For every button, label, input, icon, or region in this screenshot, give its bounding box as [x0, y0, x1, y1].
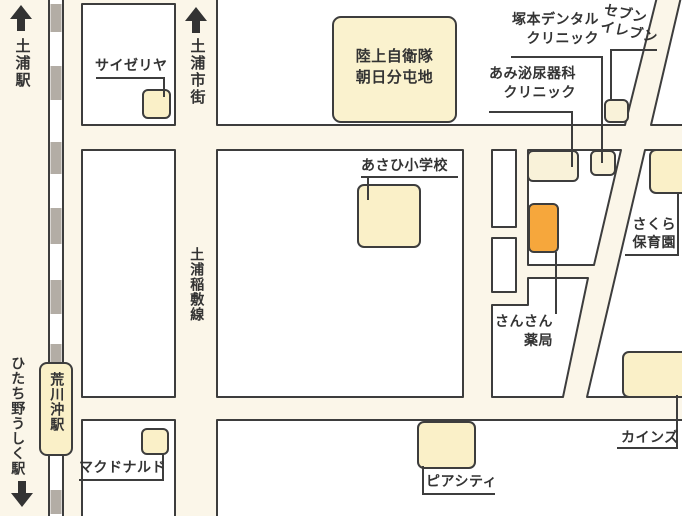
cainz-label: カインズ	[621, 428, 679, 446]
tsukamoto-dental-label: 塚本デンタル クリニック	[512, 10, 599, 48]
saizeriya-label: サイゼリヤ	[95, 56, 168, 74]
ami-urology-building	[528, 151, 578, 181]
tsuchiura-station-label: 土浦駅	[12, 38, 32, 89]
block-school	[217, 150, 463, 397]
piacity-building	[418, 422, 475, 468]
sakura-nursery-building	[650, 150, 682, 193]
ami-urology-label-line1: あみ泌尿器科	[489, 64, 576, 83]
jsdf-camp-label-line2: 朝日分屯地	[333, 67, 456, 88]
area-map: 土浦駅 土浦市街 土浦稲敷線 ひたち野うしく駅 荒川沖駅 サイゼリヤ 陸上自衛隊…	[0, 0, 682, 516]
sakura-nursery-label: さくら 保育園	[633, 215, 677, 251]
hitachino-ushiku-station-label: ひたち野うしく駅	[9, 356, 27, 476]
mcdonalds-label: マクドナルド	[79, 458, 166, 476]
sansan-pharmacy-label: さんさん 薬局	[495, 312, 553, 350]
piacity-label: ピアシティ	[426, 472, 497, 490]
sansan-pharmacy-label-line2: 薬局	[495, 331, 553, 350]
south-arrow-hitachino-icon	[11, 481, 33, 507]
sakura-nursery-label-line2: 保育園	[633, 233, 677, 251]
block-west-middle	[82, 150, 175, 397]
unnamed-building-1	[492, 150, 516, 227]
cainz-building	[623, 352, 682, 397]
unnamed-building-2	[492, 238, 516, 292]
tsuchiura-inashiki-road-label: 土浦稲敷線	[188, 247, 206, 322]
tsukamoto-dental-label-line2: クリニック	[512, 29, 599, 48]
north-arrow-tsuchiura-station-icon	[10, 5, 32, 31]
tsukamoto-dental-label-line1: 塚本デンタル	[512, 10, 599, 29]
arakawaoki-station-label: 荒川沖駅	[48, 372, 66, 432]
mcdonalds-building	[142, 429, 168, 454]
jsdf-camp-label-line1: 陸上自衛隊	[333, 46, 456, 67]
tsuchiura-city-direction-label: 土浦市街	[187, 38, 207, 106]
saizeriya-building	[143, 90, 170, 118]
north-arrow-tsuchiura-city-icon	[185, 7, 207, 33]
sakura-nursery-label-line1: さくら	[633, 215, 677, 233]
seven-eleven-building	[605, 100, 628, 122]
ami-urology-label: あみ泌尿器科 クリニック	[489, 64, 576, 102]
asahi-school-label: あさひ小学校	[361, 156, 448, 174]
sansan-pharmacy-label-line1: さんさん	[495, 312, 553, 331]
jsdf-camp-label: 陸上自衛隊 朝日分屯地	[333, 46, 456, 88]
ami-urology-label-line2: クリニック	[489, 83, 576, 102]
sansan-pharmacy-building-highlighted	[529, 204, 558, 252]
